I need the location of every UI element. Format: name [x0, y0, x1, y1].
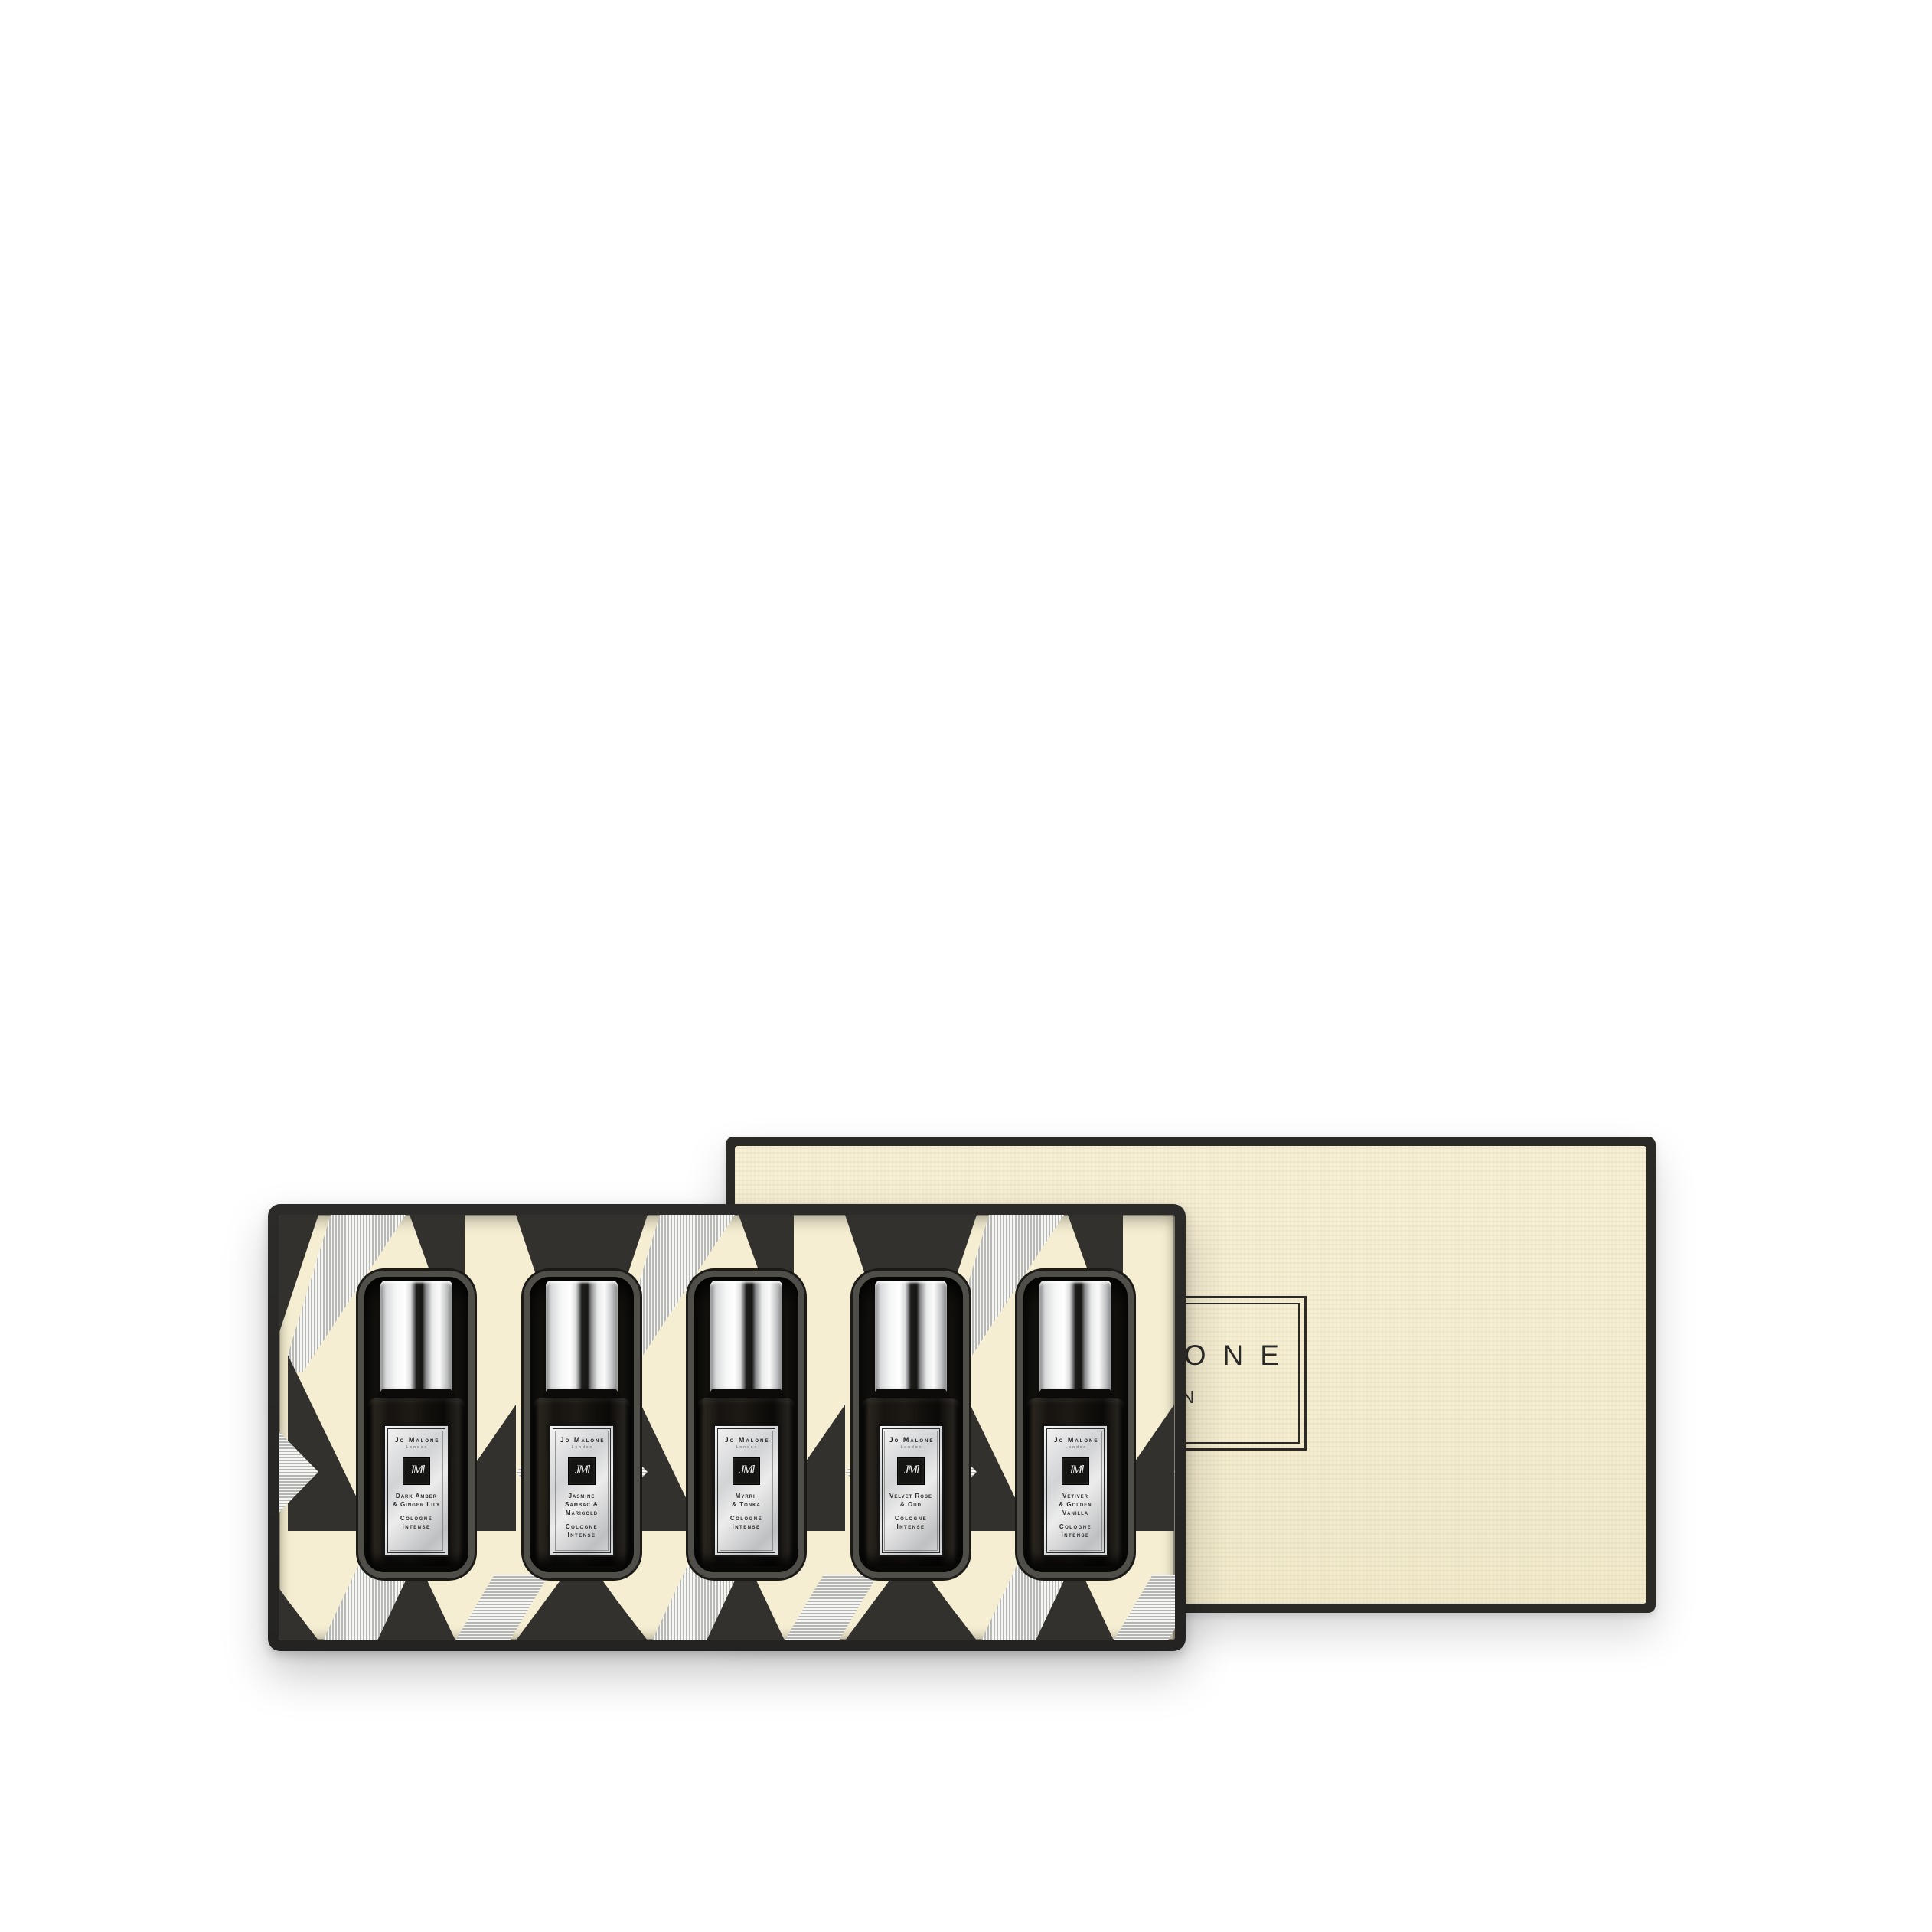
label-fragrance-name: Dark Amber& Ginger Lily [393, 1492, 440, 1509]
cologne-type-line: Cologne [730, 1514, 762, 1522]
bottle-label: Jo MaloneLondonJMlMyrrh& TonkaCologneInt… [713, 1425, 779, 1557]
label-city-text: London [735, 1445, 759, 1450]
cologne-type-line: Intense [1059, 1531, 1092, 1539]
bottle-cap [875, 1281, 947, 1394]
charcoal-triangle [279, 1215, 288, 1640]
bottle-label-inner: Jo MaloneLondonJMlJasmineSambac &Marigol… [553, 1428, 611, 1553]
fragrance-name-line: Sambac & [565, 1500, 599, 1509]
bottle-label-inner: Jo MaloneLondonJMlVelvet Rose& OudCologn… [882, 1428, 940, 1553]
label-brand-text: Jo Malone [1052, 1436, 1099, 1444]
monogram-initials: JMl [739, 1464, 754, 1477]
fragrance-name-line: Dark Amber [393, 1492, 440, 1500]
fragrance-name-line: & Oud [889, 1500, 932, 1509]
fragrance-name-line: Vanilla [1059, 1509, 1092, 1517]
cologne-bottle: Jo MaloneLondonJMlVelvet Rose& OudCologn… [862, 1398, 960, 1566]
cologne-bottle: Jo MaloneLondonJMlDark Amber& Ginger Lil… [367, 1398, 465, 1566]
label-type-text: CologneIntense [566, 1522, 598, 1539]
fragrance-name-line: Marigold [565, 1509, 599, 1517]
geometric-pattern: Jo MaloneLondonJMlDark Amber& Ginger Lil… [279, 1215, 1175, 1640]
label-type-text: CologneIntense [400, 1514, 432, 1531]
cologne-type-line: Cologne [895, 1514, 927, 1522]
label-city-text: London [405, 1445, 429, 1450]
fragrance-name-line: Velvet Rose [889, 1492, 932, 1500]
cologne-type-line: Intense [566, 1531, 598, 1539]
label-type-text: CologneIntense [1059, 1522, 1092, 1539]
monogram-initials: JMl [904, 1464, 919, 1477]
bottle-cap [1039, 1281, 1111, 1394]
cologne-bottle: Jo MaloneLondonJMlMyrrh& TonkaCologneInt… [697, 1398, 795, 1566]
label-fragrance-name: Myrrh& Tonka [732, 1492, 761, 1509]
pattern-tile [279, 1215, 288, 1640]
bottle-label-inner: Jo MaloneLondonJMlDark Amber& Ginger Lil… [387, 1428, 445, 1553]
label-fragrance-name: Velvet Rose& Oud [889, 1492, 932, 1509]
label-monogram: JMl [1062, 1457, 1089, 1485]
bottle-cap [380, 1281, 452, 1394]
fragrance-name-line: & Golden [1059, 1500, 1092, 1509]
label-type-text: CologneIntense [895, 1514, 927, 1531]
cologne-type-line: Cologne [1059, 1522, 1092, 1531]
cologne-type-line: Intense [730, 1522, 762, 1531]
label-fragrance-name: JasmineSambac &Marigold [565, 1492, 599, 1517]
bottle-label: Jo MaloneLondonJMlDark Amber& Ginger Lil… [383, 1425, 449, 1557]
cologne-type-line: Cologne [400, 1514, 432, 1522]
label-brand-text: Jo Malone [393, 1436, 440, 1444]
label-city-text: London [570, 1445, 594, 1450]
monogram-initials: JMl [1069, 1464, 1083, 1477]
label-brand-text: Jo Malone [888, 1436, 935, 1444]
bottle-label-inner: Jo MaloneLondonJMlVetiver& GoldenVanilla… [1046, 1428, 1105, 1553]
fragrance-name-line: & Tonka [732, 1500, 761, 1509]
cologne-type-line: Intense [400, 1522, 432, 1531]
bottle-cap [710, 1281, 782, 1394]
fragrance-name-line: Jasmine [565, 1492, 599, 1500]
label-brand-text: Jo Malone [723, 1436, 770, 1444]
label-brand-text: Jo Malone [559, 1436, 605, 1444]
bottle-label: Jo MaloneLondonJMlVetiver& GoldenVanilla… [1043, 1425, 1108, 1557]
cologne-bottle: Jo MaloneLondonJMlVetiver& GoldenVanilla… [1026, 1398, 1124, 1566]
product-photo-cologne-gift-set: JO MALONE LONDON Jo MaloneLondonJMlDark … [0, 0, 1932, 1932]
bottle-label: Jo MaloneLondonJMlVelvet Rose& OudCologn… [878, 1425, 944, 1557]
label-city-text: London [1064, 1445, 1088, 1450]
label-city-text: London [899, 1445, 923, 1450]
cologne-type-line: Intense [895, 1522, 927, 1531]
fragrance-name-line: & Ginger Lily [393, 1500, 440, 1509]
gift-tray: Jo MaloneLondonJMlDark Amber& Ginger Lil… [268, 1204, 1186, 1651]
bottle-label: Jo MaloneLondonJMlJasmineSambac &Marigol… [549, 1425, 615, 1557]
bottle-cap [546, 1281, 618, 1394]
cologne-type-line: Cologne [566, 1522, 598, 1531]
label-fragrance-name: Vetiver& GoldenVanilla [1059, 1492, 1092, 1517]
label-monogram: JMl [897, 1457, 925, 1485]
bottle-label-inner: Jo MaloneLondonJMlMyrrh& TonkaCologneInt… [717, 1428, 775, 1553]
monogram-initials: JMl [410, 1464, 424, 1477]
label-monogram: JMl [568, 1457, 596, 1485]
monogram-initials: JMl [575, 1464, 589, 1477]
fragrance-name-line: Vetiver [1059, 1492, 1092, 1500]
label-monogram: JMl [403, 1457, 430, 1485]
label-type-text: CologneIntense [730, 1514, 762, 1531]
fragrance-name-line: Myrrh [732, 1492, 761, 1500]
cologne-bottle: Jo MaloneLondonJMlJasmineSambac &Marigol… [533, 1398, 631, 1566]
label-monogram: JMl [733, 1457, 760, 1485]
